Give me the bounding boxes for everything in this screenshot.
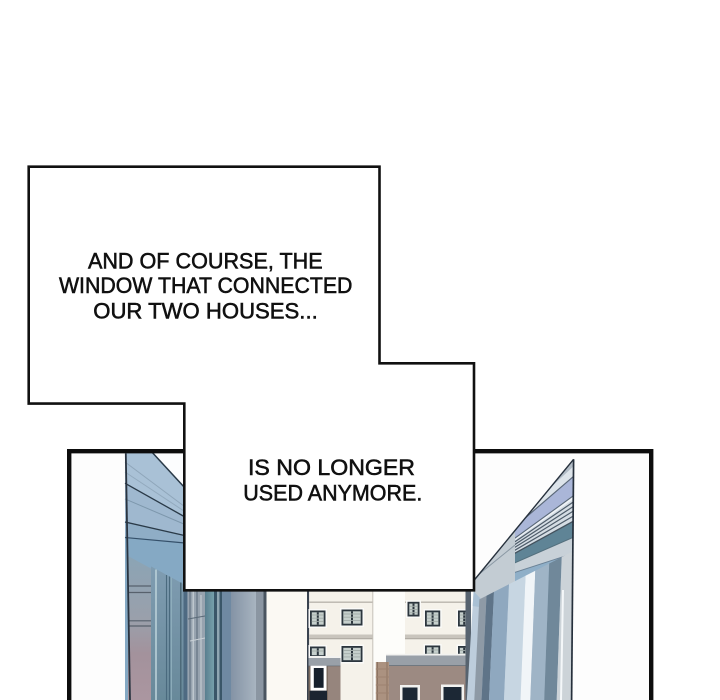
svg-text:USED ANYMORE.: USED ANYMORE.	[243, 480, 422, 505]
svg-text:IS NO LONGER: IS NO LONGER	[248, 455, 415, 480]
svg-text:OUR TWO HOUSES...: OUR TWO HOUSES...	[93, 299, 318, 324]
svg-text:AND OF COURSE, THE: AND OF COURSE, THE	[88, 248, 323, 273]
svg-text:WINDOW THAT CONNECTED: WINDOW THAT CONNECTED	[59, 273, 353, 298]
